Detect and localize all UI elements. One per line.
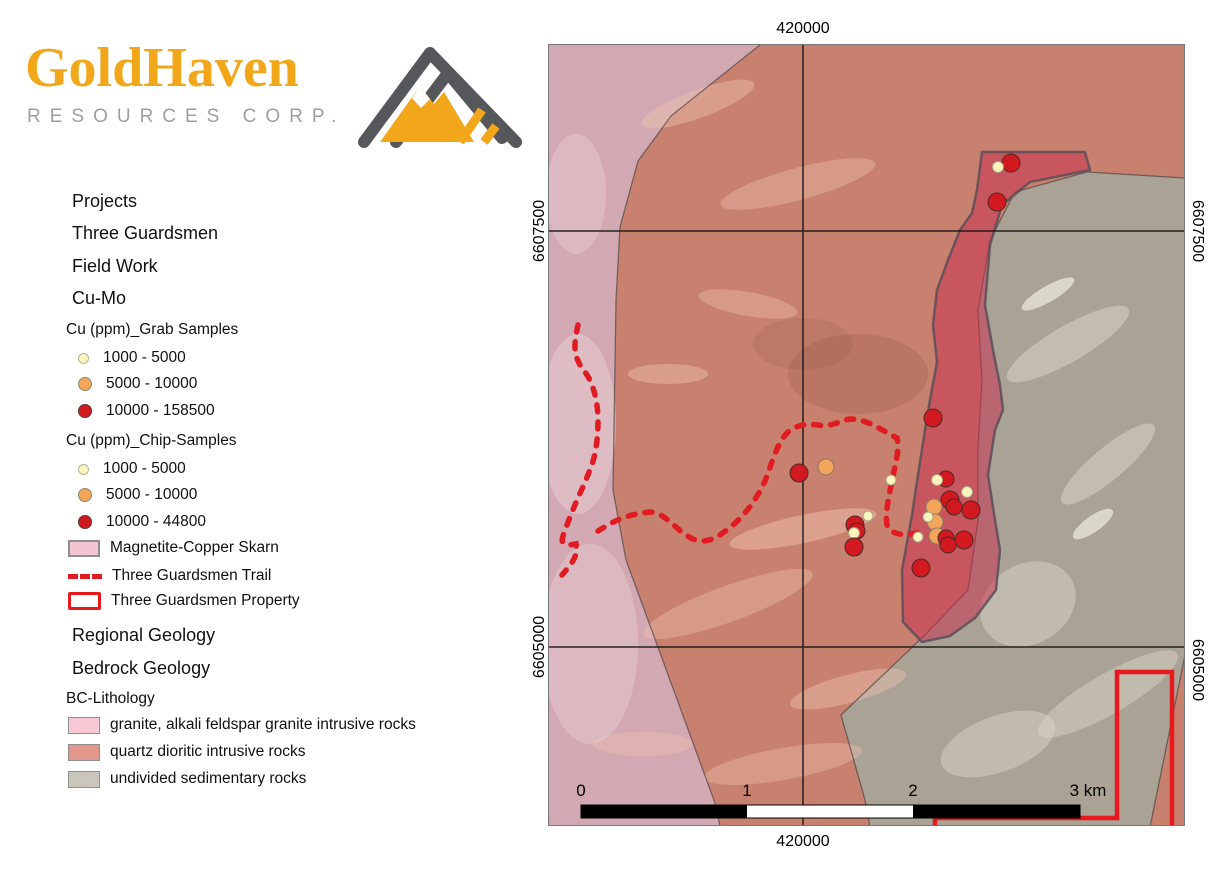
legend-chip-high-label: 10000 - 44800 — [106, 513, 206, 531]
sample-point — [845, 538, 863, 556]
sample-point — [863, 511, 873, 521]
sample-point — [924, 409, 942, 427]
legend-litho-sedimentary-label: undivided sedimentary rocks — [110, 770, 306, 788]
sample-point — [886, 475, 896, 485]
trail-dashed-line-icon — [68, 574, 102, 579]
legend-grab-high-label: 10000 - 158500 — [106, 402, 215, 420]
high-grade-dot-icon — [78, 515, 92, 529]
legend-item-field-work: Field Work — [72, 256, 158, 277]
sample-point — [849, 528, 860, 539]
sample-point — [955, 531, 973, 549]
legend-grab-class-mid: 5000 - 10000 — [78, 375, 197, 393]
legend-grab-mid-label: 5000 - 10000 — [106, 375, 197, 393]
legend-trail-label: Three Guardsmen Trail — [112, 567, 271, 585]
scale-tick-1: 1 — [742, 781, 751, 800]
scale-tick-0: 0 — [576, 781, 585, 800]
logo-wordmark: GoldHaven — [25, 40, 299, 96]
legend-item-projects: Projects — [72, 191, 137, 212]
legend-item-regional-geology: Regional Geology — [72, 625, 215, 646]
granite-swatch-icon — [68, 717, 100, 734]
skarn-swatch-icon — [68, 540, 100, 557]
scale-tick-2: 2 — [908, 781, 917, 800]
legend-grab-class-low: 1000 - 5000 — [78, 349, 186, 367]
grid-label-northing-right-top: 6607500 — [1188, 200, 1206, 262]
legend-skarn-label: Magnetite-Copper Skarn — [110, 539, 279, 557]
grid-label-northing-left-bottom: 6605000 — [531, 616, 549, 678]
low-grade-dot-icon — [78, 353, 89, 364]
legend-chip-class-high: 10000 - 44800 — [78, 513, 206, 531]
sample-point — [913, 532, 923, 542]
legend-grab-title: Cu (ppm)_Grab Samples — [66, 321, 238, 339]
sample-point — [790, 464, 808, 482]
sample-point — [946, 499, 962, 515]
legend-grab-class-high: 10000 - 158500 — [78, 402, 215, 420]
company-logo: GoldHaven RESOURCES CORP. — [25, 38, 525, 148]
legend-grab-low-label: 1000 - 5000 — [103, 349, 186, 367]
grid-label-northing-right-bottom: 6605000 — [1188, 639, 1206, 701]
legend-chip-class-low: 1000 - 5000 — [78, 460, 186, 478]
sedimentary-swatch-icon — [68, 771, 100, 788]
logo-word-gold2: Haven — [143, 37, 299, 99]
legend-chip-class-mid: 5000 - 10000 — [78, 486, 197, 504]
scale-tick-3km: 3 km — [1070, 781, 1107, 800]
sample-point — [962, 501, 980, 519]
sample-point — [912, 559, 930, 577]
legend-litho-sedimentary: undivided sedimentary rocks — [68, 770, 306, 788]
legend-litho-quartz-diorite: quartz dioritic intrusive rocks — [68, 743, 306, 761]
quartz-diorite-swatch-icon — [68, 744, 100, 761]
legend-skarn: Magnetite-Copper Skarn — [68, 539, 279, 557]
mountain-logo-icon — [350, 38, 530, 153]
legend-item-three-guardsmen: Three Guardsmen — [72, 223, 218, 244]
legend-property-label: Three Guardsmen Property — [111, 592, 300, 610]
grid-label-northing-left-top: 6607500 — [531, 200, 549, 262]
mid-grade-dot-icon — [78, 488, 92, 502]
logo-subtitle: RESOURCES CORP. — [27, 106, 345, 128]
sample-point — [932, 475, 943, 486]
sample-point — [993, 162, 1004, 173]
sample-point — [923, 512, 933, 522]
legend-chip-mid-label: 5000 - 10000 — [106, 486, 197, 504]
legend-item-cu-mo: Cu-Mo — [72, 288, 126, 309]
legend-chip-title: Cu (ppm)_Chip-Samples — [66, 432, 237, 450]
legend-property: Three Guardsmen Property — [68, 592, 300, 610]
high-grade-dot-icon — [78, 404, 92, 418]
map-canvas[interactable]: 0 1 2 3 km — [548, 44, 1185, 826]
map-svg: 0 1 2 3 km — [548, 44, 1185, 826]
grid-label-easting-bottom: 420000 — [776, 833, 829, 851]
low-grade-dot-icon — [78, 464, 89, 475]
logo-word-gold1: Gold — [25, 37, 143, 99]
property-outline-icon — [68, 592, 101, 610]
legend-item-bedrock-geology: Bedrock Geology — [72, 658, 210, 679]
legend-trail: Three Guardsmen Trail — [68, 567, 271, 585]
sample-point — [1002, 154, 1020, 172]
sample-point — [988, 193, 1006, 211]
legend-lithology-title: BC-Lithology — [66, 690, 155, 708]
legend-litho-granite: granite, alkali feldspar granite intrusi… — [68, 716, 416, 734]
mid-grade-dot-icon — [78, 377, 92, 391]
sample-point — [940, 537, 956, 553]
sample-point — [962, 487, 973, 498]
grid-label-easting-top: 420000 — [776, 20, 829, 38]
legend-litho-granite-label: granite, alkali feldspar granite intrusi… — [110, 716, 416, 734]
legend-chip-low-label: 1000 - 5000 — [103, 460, 186, 478]
legend-litho-quartz-diorite-label: quartz dioritic intrusive rocks — [110, 743, 306, 761]
sample-point — [818, 459, 834, 475]
